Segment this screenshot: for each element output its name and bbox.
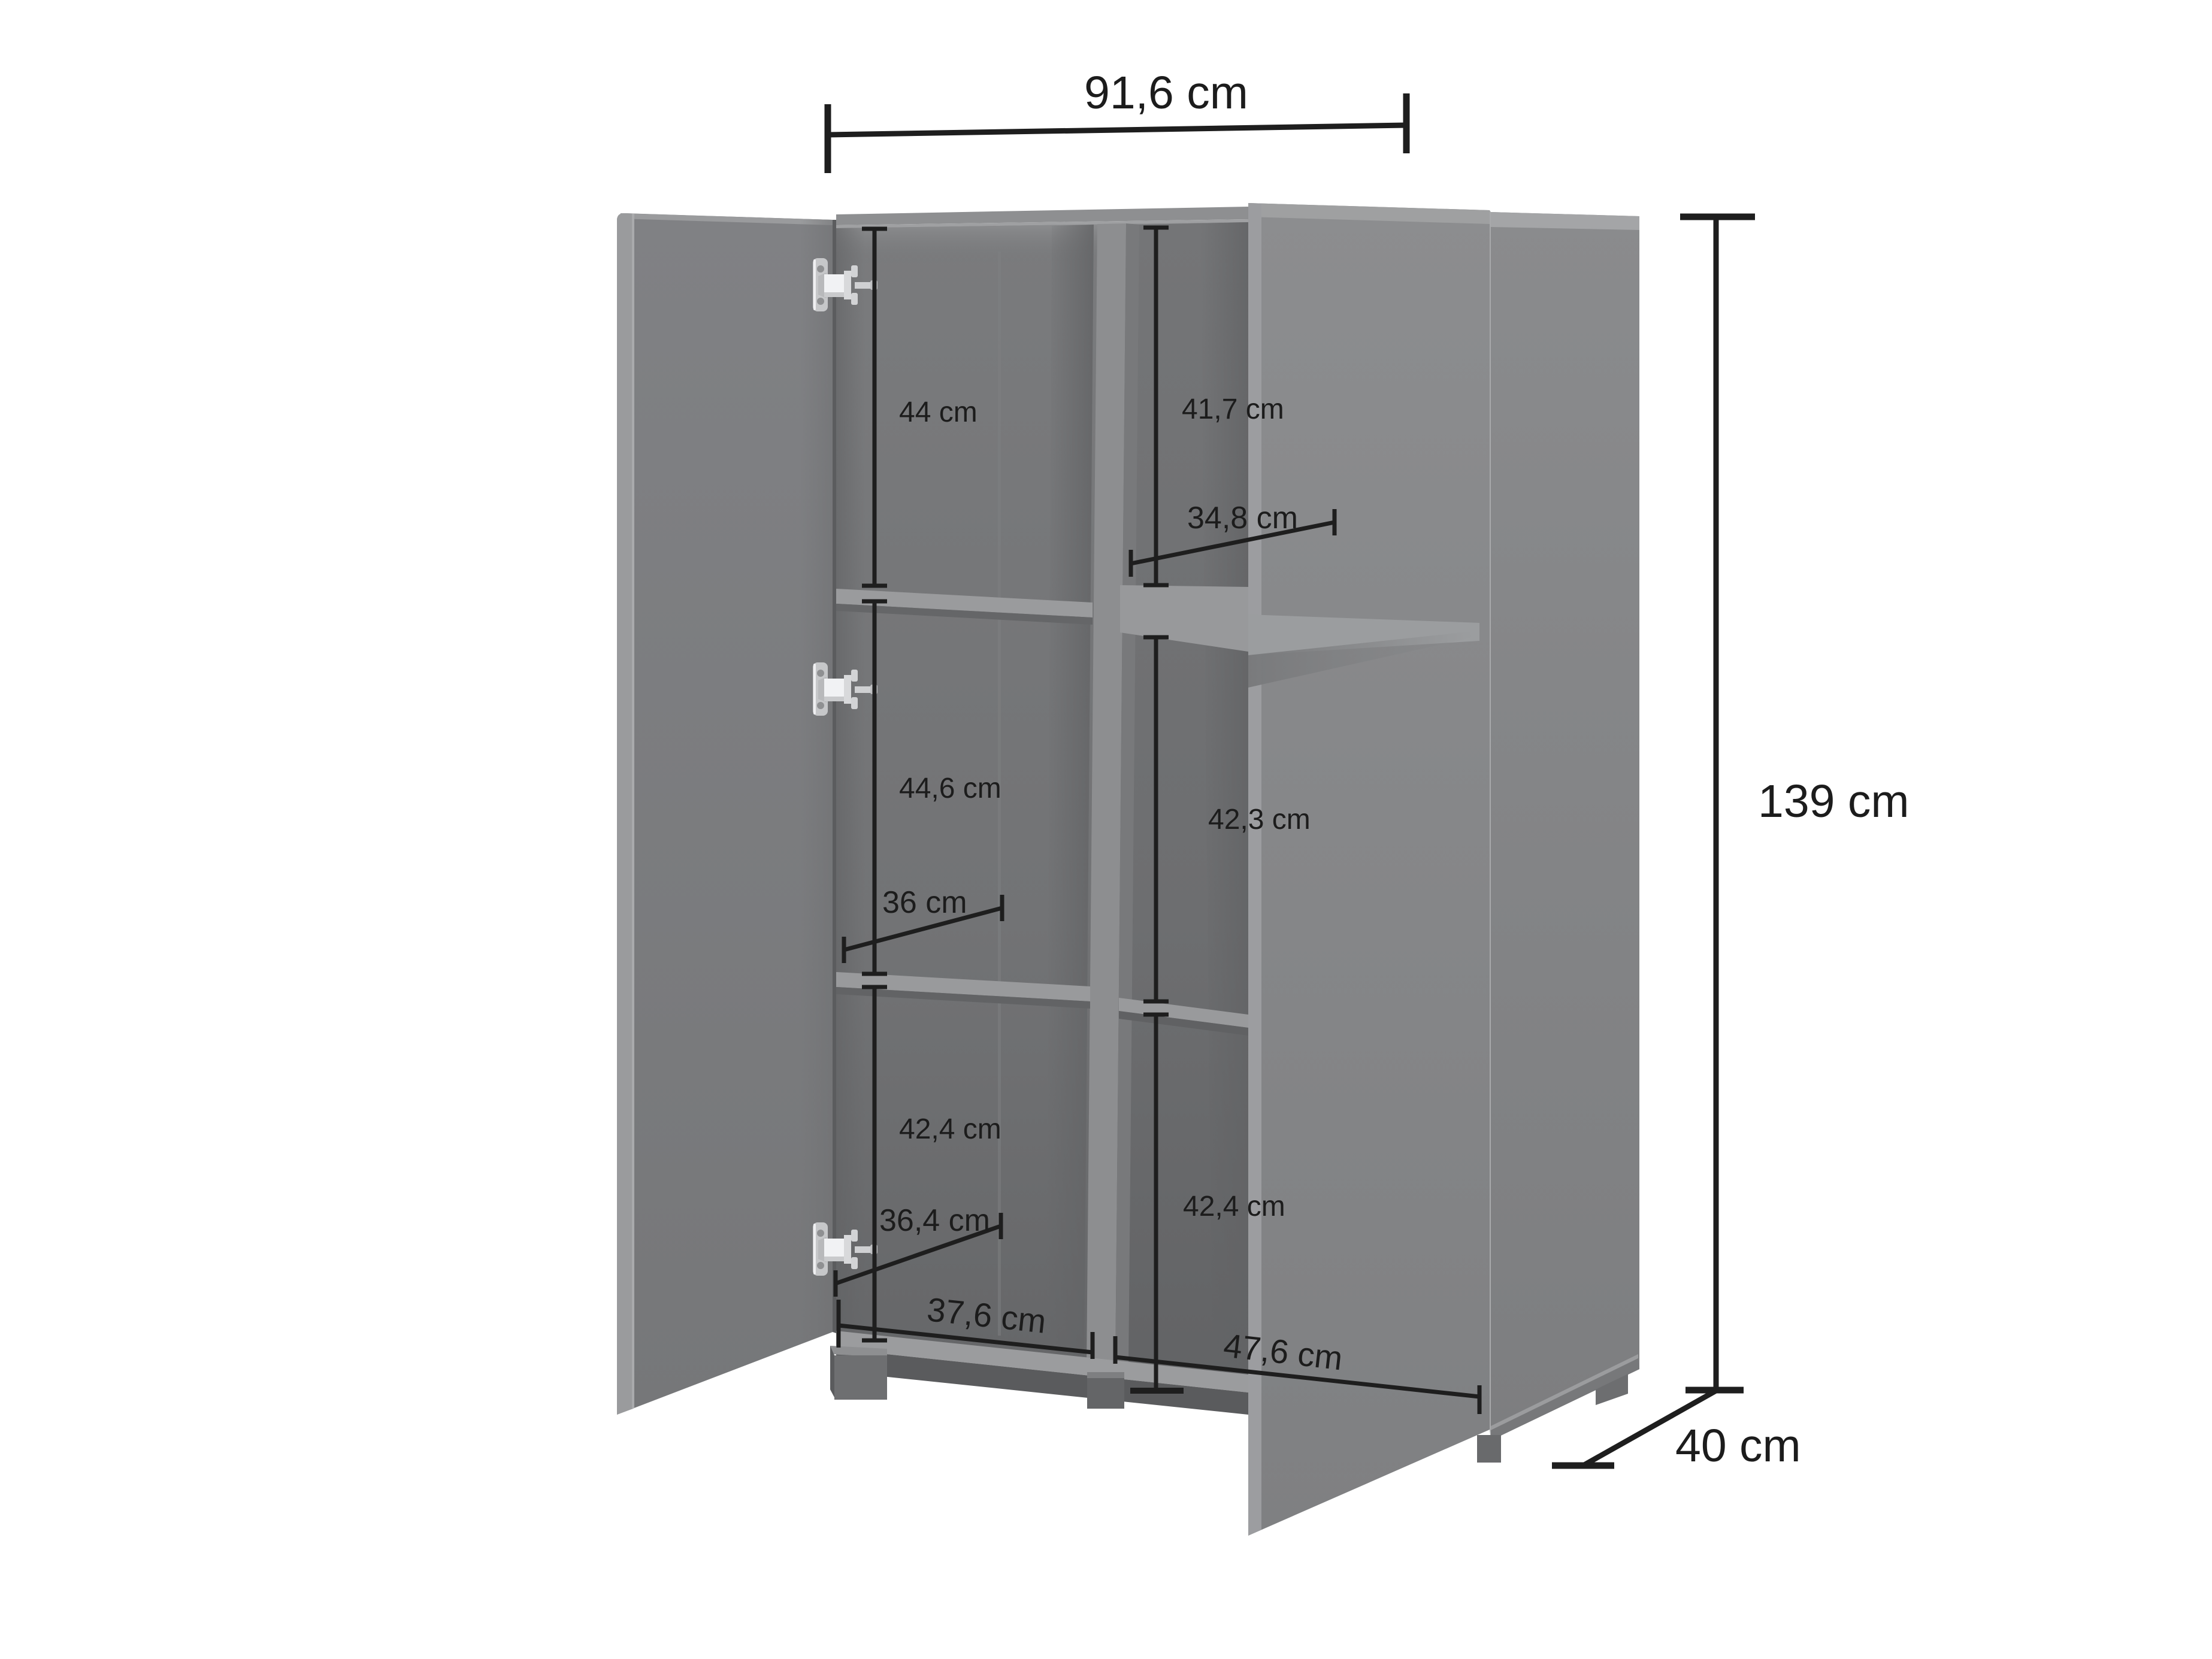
svg-text:41,7 cm: 41,7 cm [1182,393,1284,425]
svg-text:42,3 cm: 42,3 cm [1208,804,1311,835]
svg-text:40 cm: 40 cm [1675,1420,1801,1472]
svg-text:36,4 cm: 36,4 cm [879,1203,990,1238]
svg-text:34,8 cm: 34,8 cm [1187,501,1298,535]
svg-text:44 cm: 44 cm [899,396,978,428]
svg-text:42,4 cm: 42,4 cm [1183,1191,1285,1222]
svg-text:139 cm: 139 cm [1758,776,1910,827]
svg-text:91,6 cm: 91,6 cm [1084,67,1248,119]
svg-text:36 cm: 36 cm [882,885,967,920]
svg-text:42,4 cm: 42,4 cm [899,1113,1001,1145]
svg-text:44,6 cm: 44,6 cm [899,773,1001,804]
